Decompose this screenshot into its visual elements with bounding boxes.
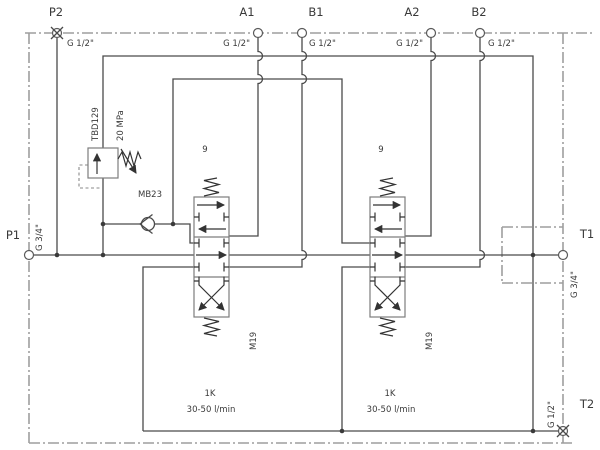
port-b1-thread-label: G 1/2" [309,39,336,49]
port-a1-symbol [254,29,263,38]
port-t1-thread-label: G 3/4" [570,271,580,298]
junction-dot [171,222,176,227]
section2-size-label: 1K [385,389,396,399]
port-a1-thread-label: G 1/2" [223,39,250,49]
junction-dot [101,222,106,227]
check-valve [140,215,155,234]
valve2-bottom-spring [380,318,395,336]
relief-adjust-arrow [121,149,136,173]
port-a2-label: A2 [404,5,419,19]
port-a2-thread-label: G 1/2" [396,39,423,49]
section2-flow-label: 30-50 l/min [367,405,416,415]
port-t2-thread-label: G 1/2" [547,401,557,428]
port-t2-label: T2 [579,397,594,411]
a2-work-line [405,38,436,237]
port-t1-label: T1 [579,227,594,241]
port-b2-thread-label: G 1/2" [488,39,515,49]
port-p2-symbol [51,27,63,39]
port-b1-label: B1 [308,5,323,19]
port-a1-label: A1 [239,5,254,19]
port-p1-thread-label: G 3/4" [35,224,45,251]
a1-work-line [229,38,263,237]
junction-dot [340,429,345,434]
check-valve-out-line [155,224,194,243]
junction-dot [531,429,536,434]
port-p2-thread-label: G 1/2" [67,39,94,49]
port-b2-symbol [476,29,485,38]
relief-valve [79,148,141,188]
port-t2-symbol [557,425,569,437]
valve1-spool-code-label: M19 [249,332,259,350]
port-a2-symbol [427,29,436,38]
section1-flow-label: 30-50 l/min [187,405,236,415]
b1-work-line [229,38,307,268]
junction-dot [55,253,60,258]
valve2-top-spring [380,178,395,196]
hydraulic-schematic: P2 A1 B1 A2 B2 P1 T1 T2 G 1/2" G 1/2" G … [0,0,600,450]
valve2-id-label: 9 [378,145,383,155]
check-valve-ball [142,218,155,231]
port-symbols [25,27,570,437]
port-t1-symbol [559,251,568,260]
section1-size-label: 1K [205,389,216,399]
b2-work-line [405,38,485,268]
enclosure-border [25,33,592,443]
valve1-id-label: 9 [202,145,207,155]
relief-setting-label: 20 MPa [116,110,126,141]
directional-valve-1 [194,178,229,336]
hydraulic-schematic-page: P2 A1 B1 A2 B2 P1 T1 T2 G 1/2" G 1/2" G … [0,0,600,450]
port-b2-label: B2 [471,5,486,19]
check-valve-label: MB23 [138,190,162,200]
port-p2-label: P2 [49,5,63,19]
valve2-spool-code-label: M19 [425,332,435,350]
port-p1-label: P1 [6,228,20,242]
valve1-top-spring [204,178,219,196]
relief-model-label: TBD129 [91,107,101,142]
tank-header-line [103,56,533,431]
circuit-lines [34,38,559,432]
valve1-bottom-spring [204,318,219,336]
relief-valve-body [88,148,118,178]
junction-dot [531,253,536,258]
labels: P2 A1 B1 A2 B2 P1 T1 T2 G 1/2" G 1/2" G … [6,5,594,428]
junction-dots [55,222,536,434]
port-p1-symbol [25,251,34,260]
directional-valve-2 [370,178,405,336]
port-b1-symbol [298,29,307,38]
relief-spring [118,152,141,166]
junction-dot [101,253,106,258]
